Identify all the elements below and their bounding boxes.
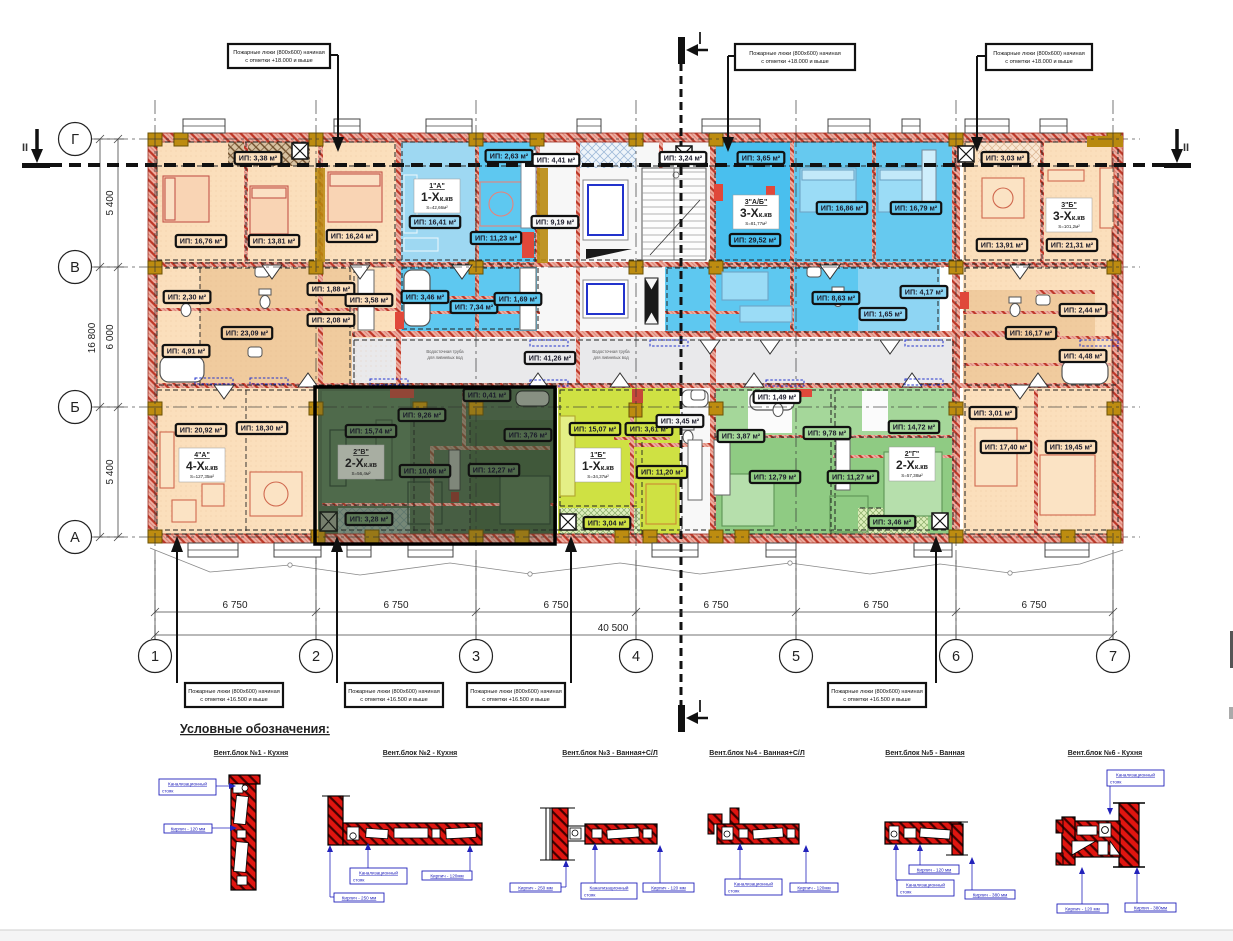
svg-text:ИП: 2,44 м²: ИП: 2,44 м²: [1064, 306, 1103, 315]
svg-text:стояк: стояк: [353, 878, 365, 883]
svg-text:Канализационный: Канализационный: [906, 882, 945, 888]
svg-text:ИП: 1,49 м²: ИП: 1,49 м²: [758, 393, 797, 402]
svg-text:Кирпич - 380мм: Кирпич - 380мм: [1134, 906, 1167, 911]
svg-text:ИП: 3,58 м²: ИП: 3,58 м²: [350, 296, 389, 305]
svg-text:Кирпич - 120 мм: Кирпич - 120 мм: [917, 868, 952, 873]
svg-text:Кирпич - 120мм: Кирпич - 120мм: [797, 886, 830, 891]
svg-text:ИП: 16,79 м²: ИП: 16,79 м²: [895, 204, 938, 213]
svg-text:Пожарные люки (800х600) начина: Пожарные люки (800х600) начиная: [993, 51, 1084, 57]
svg-text:ИП: 23,09 м²: ИП: 23,09 м²: [226, 329, 269, 338]
svg-text:Кирпич - 120 мм: Кирпич - 120 мм: [651, 886, 686, 891]
svg-text:S=34,37м²: S=34,37м²: [587, 474, 609, 479]
svg-text:Условные обозначения:: Условные обозначения:: [180, 722, 330, 736]
svg-text:Вент.блок №2 - Кухня: Вент.блок №2 - Кухня: [383, 749, 458, 757]
svg-text:6 750: 6 750: [863, 600, 888, 611]
svg-text:ИП: 4,48 м²: ИП: 4,48 м²: [1064, 352, 1103, 361]
svg-text:6 000: 6 000: [105, 324, 116, 349]
svg-text:4: 4: [632, 649, 640, 665]
svg-text:с отметки +16.500 и выше: с отметки +16.500 и выше: [843, 697, 911, 703]
svg-text:ИП: 16,76 м²: ИП: 16,76 м²: [180, 237, 223, 246]
svg-text:стояк: стояк: [584, 893, 596, 898]
svg-text:ИП: 3,46 м²: ИП: 3,46 м²: [406, 293, 445, 302]
svg-text:ИП: 3,04 м²: ИП: 3,04 м²: [588, 519, 627, 528]
svg-text:стояк: стояк: [1110, 780, 1122, 785]
svg-text:Г: Г: [71, 132, 79, 148]
svg-text:II: II: [22, 142, 28, 154]
svg-text:с отметки +18.000 и выше: с отметки +18.000 и выше: [761, 59, 829, 65]
svg-text:Кирпич - 380 мм: Кирпич - 380 мм: [973, 893, 1008, 898]
svg-text:для ливневых вод: для ливневых вод: [593, 355, 629, 360]
svg-text:6 750: 6 750: [543, 600, 568, 611]
svg-text:ИП: 19,45 м²: ИП: 19,45 м²: [1050, 443, 1093, 452]
svg-text:3"Б": 3"Б": [1061, 202, 1077, 209]
svg-text:ИП: 9,26 м²: ИП: 9,26 м²: [403, 411, 442, 420]
svg-text:ИП: 16,24 м²: ИП: 16,24 м²: [331, 232, 374, 241]
svg-text:с отметки +16.500 и выше: с отметки +16.500 и выше: [200, 697, 268, 703]
svg-text:ИП: 11,27 м²: ИП: 11,27 м²: [832, 473, 875, 482]
svg-text:Вент.блок №3 - Ванная+С/Л: Вент.блок №3 - Ванная+С/Л: [562, 749, 658, 757]
svg-text:II: II: [1183, 142, 1189, 154]
svg-text:Кирпич - 120мм: Кирпич - 120мм: [430, 874, 463, 879]
svg-text:3: 3: [472, 649, 480, 665]
svg-text:3"А/Б": 3"А/Б": [745, 199, 768, 206]
svg-text:ИП: 16,86 м²: ИП: 16,86 м²: [821, 204, 864, 213]
svg-text:Пожарные люки (800х600) начина: Пожарные люки (800х600) начиная: [233, 50, 324, 56]
svg-text:ИП: 13,91 м²: ИП: 13,91 м²: [981, 241, 1024, 250]
svg-text:S=81,77м²: S=81,77м²: [745, 221, 767, 226]
svg-text:Кирпич - 250 мм: Кирпич - 250 мм: [342, 896, 377, 901]
svg-text:ИП: 15,07 м²: ИП: 15,07 м²: [574, 425, 617, 434]
svg-text:ИП: 3,45 м²: ИП: 3,45 м²: [661, 417, 700, 426]
svg-text:5 400: 5 400: [105, 459, 116, 484]
svg-text:6 750: 6 750: [703, 600, 728, 611]
svg-text:ИП: 3,24 м²: ИП: 3,24 м²: [664, 154, 703, 163]
svg-text:ИП: 16,17 м²: ИП: 16,17 м²: [1010, 329, 1053, 338]
svg-text:ИП: 2,30 м²: ИП: 2,30 м²: [168, 293, 207, 302]
svg-text:стояк: стояк: [162, 789, 174, 794]
svg-text:ИП: 3,28 м²: ИП: 3,28 м²: [350, 515, 389, 524]
svg-text:Канализационный: Канализационный: [1116, 772, 1155, 778]
svg-text:Пожарные люки (800х600) начина: Пожарные люки (800х600) начиная: [470, 689, 561, 695]
svg-text:S=57,38м²: S=57,38м²: [901, 473, 923, 478]
svg-text:с отметки +16.500 и выше: с отметки +16.500 и выше: [482, 697, 550, 703]
svg-text:Канализационный: Канализационный: [734, 881, 773, 887]
svg-text:6 750: 6 750: [383, 600, 408, 611]
svg-text:В: В: [70, 260, 80, 276]
svg-text:стояк: стояк: [728, 889, 740, 894]
svg-text:2"Г": 2"Г": [905, 451, 920, 458]
svg-text:6 750: 6 750: [1021, 600, 1046, 611]
svg-text:ИП: 17,40 м²: ИП: 17,40 м²: [985, 443, 1028, 452]
svg-text:6: 6: [952, 649, 960, 665]
svg-text:16 800: 16 800: [87, 322, 98, 353]
svg-text:Вент.блок №5 - Ванная: Вент.блок №5 - Ванная: [885, 749, 964, 757]
svg-text:ИП: 2,63 м²: ИП: 2,63 м²: [490, 152, 529, 161]
svg-text:4"А": 4"А": [194, 452, 210, 459]
svg-text:Водосточная труба: Водосточная труба: [426, 349, 464, 354]
svg-text:5: 5: [792, 649, 800, 665]
svg-text:ИП: 7,34 м²: ИП: 7,34 м²: [455, 303, 494, 312]
svg-text:1"А": 1"А": [429, 183, 445, 190]
svg-text:ИП: 9,19 м²: ИП: 9,19 м²: [536, 218, 575, 227]
svg-text:S=127,35м²: S=127,35м²: [190, 474, 214, 479]
svg-text:с отметки +18.000 и выше: с отметки +18.000 и выше: [245, 58, 313, 64]
svg-text:Канализационный: Канализационный: [359, 870, 398, 876]
svg-text:ИП: 1,69 м²: ИП: 1,69 м²: [499, 295, 538, 304]
svg-text:ИП: 15,74 м²: ИП: 15,74 м²: [350, 427, 393, 436]
svg-text:ИП: 3,46 м²: ИП: 3,46 м²: [873, 518, 912, 527]
svg-text:ИП: 10,66 м²: ИП: 10,66 м²: [404, 467, 447, 476]
svg-text:Кирпич - 120 мм: Кирпич - 120 мм: [171, 827, 206, 832]
svg-text:ИП: 3,03 м²: ИП: 3,03 м²: [986, 154, 1025, 163]
svg-text:ИП: 18,30 м²: ИП: 18,30 м²: [241, 424, 284, 433]
svg-text:ИП: 3,87 м²: ИП: 3,87 м²: [722, 432, 761, 441]
svg-text:для ливневых вод: для ливневых вод: [427, 355, 463, 360]
svg-text:2: 2: [312, 649, 320, 665]
svg-text:7: 7: [1109, 649, 1117, 665]
svg-text:ИП: 2,08 м²: ИП: 2,08 м²: [312, 316, 351, 325]
svg-text:Пожарные люки (800х600) начина: Пожарные люки (800х600) начиная: [348, 689, 439, 695]
svg-text:ИП: 13,81 м²: ИП: 13,81 м²: [253, 237, 296, 246]
svg-text:5 400: 5 400: [105, 190, 116, 215]
svg-text:ИП: 4,17 м²: ИП: 4,17 м²: [905, 288, 944, 297]
svg-text:ИП: 12,27 м²: ИП: 12,27 м²: [473, 466, 516, 475]
svg-text:ИП: 14,72 м²: ИП: 14,72 м²: [893, 423, 936, 432]
svg-text:с отметки +16.500 и выше: с отметки +16.500 и выше: [360, 697, 428, 703]
svg-text:ИП: 11,23 м²: ИП: 11,23 м²: [475, 234, 518, 243]
svg-text:ИП: 29,52 м²: ИП: 29,52 м²: [734, 236, 777, 245]
svg-text:А: А: [70, 530, 80, 546]
svg-text:Кирпич - 250 мм: Кирпич - 250 мм: [518, 886, 553, 891]
svg-text:ИП: 20,92 м²: ИП: 20,92 м²: [180, 426, 223, 435]
svg-text:Пожарные люки (800х600) начина: Пожарные люки (800х600) начиная: [749, 51, 840, 57]
svg-text:6 750: 6 750: [222, 600, 247, 611]
svg-text:ИП: 3,76 м²: ИП: 3,76 м²: [509, 431, 548, 440]
svg-text:Пожарные люки (800х600) начина: Пожарные люки (800х600) начиная: [188, 689, 279, 695]
svg-text:ИП: 1,65 м²: ИП: 1,65 м²: [864, 310, 903, 319]
svg-text:ИП: 3,65 м²: ИП: 3,65 м²: [742, 154, 781, 163]
svg-text:ИП: 8,63 м²: ИП: 8,63 м²: [817, 294, 856, 303]
svg-text:ИП: 1,88 м²: ИП: 1,88 м²: [312, 285, 351, 294]
svg-text:S=42,66м²: S=42,66м²: [426, 205, 448, 210]
svg-text:Вент.блок №6 - Кухня: Вент.блок №6 - Кухня: [1068, 749, 1143, 757]
svg-text:S=56,4м²: S=56,4м²: [352, 471, 371, 476]
svg-text:ИП: 21,31 м²: ИП: 21,31 м²: [1051, 241, 1094, 250]
svg-text:ИП: 12,79 м²: ИП: 12,79 м²: [754, 473, 797, 482]
svg-text:Вент.блок №1 - Кухня: Вент.блок №1 - Кухня: [214, 749, 289, 757]
svg-text:1: 1: [151, 649, 159, 665]
svg-text:ИП: 0,41 м²: ИП: 0,41 м²: [468, 391, 507, 400]
svg-text:ИП: 9,78 м²: ИП: 9,78 м²: [808, 429, 847, 438]
svg-text:с отметки +18.000 и выше: с отметки +18.000 и выше: [1005, 59, 1073, 65]
svg-text:ИП: 3,01 м²: ИП: 3,01 м²: [974, 409, 1013, 418]
svg-text:ИП: 4,41 м²: ИП: 4,41 м²: [537, 156, 576, 165]
svg-text:2"В": 2"В": [353, 449, 369, 456]
svg-text:Б: Б: [70, 400, 80, 416]
svg-text:40 500: 40 500: [598, 623, 629, 634]
svg-text:ИП: 3,38 м²: ИП: 3,38 м²: [239, 154, 278, 163]
svg-text:Канализационный: Канализационный: [168, 781, 207, 787]
svg-text:S=101,2м²: S=101,2м²: [1058, 224, 1080, 229]
svg-text:ИП: 16,41 м²: ИП: 16,41 м²: [414, 218, 457, 227]
svg-text:Пожарные люки (800х600) начина: Пожарные люки (800х600) начиная: [831, 689, 922, 695]
svg-text:Канализационный: Канализационный: [590, 885, 629, 891]
svg-text:Кирпич - 120 мм: Кирпич - 120 мм: [1065, 907, 1100, 912]
svg-text:Водосточная труба: Водосточная труба: [592, 349, 630, 354]
svg-text:стояк: стояк: [900, 890, 912, 895]
svg-text:ИП: 4,91 м²: ИП: 4,91 м²: [167, 347, 206, 356]
svg-text:ИП: 11,20 м²: ИП: 11,20 м²: [641, 468, 684, 477]
svg-text:1"Б": 1"Б": [590, 452, 606, 459]
svg-text:Вент.блок №4 - Ванная+С/Л: Вент.блок №4 - Ванная+С/Л: [709, 749, 805, 757]
svg-text:ИП: 41,26 м²: ИП: 41,26 м²: [529, 354, 572, 363]
